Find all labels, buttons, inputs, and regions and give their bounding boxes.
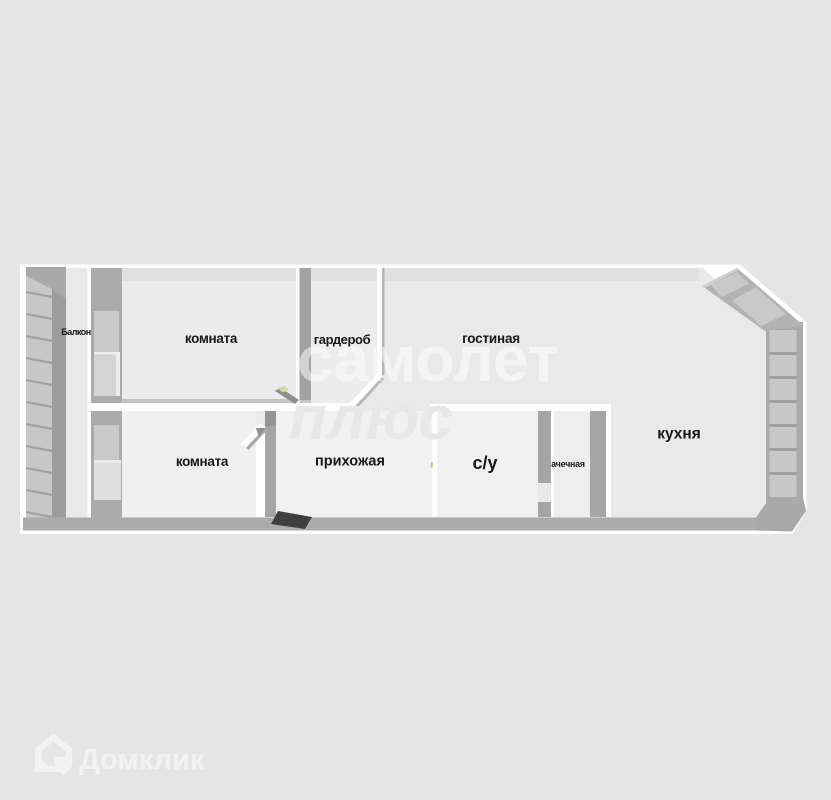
svg-text:Балкон: Балкон: [61, 327, 91, 337]
svg-text:с/у: с/у: [472, 453, 497, 473]
svg-text:прихожая: прихожая: [315, 454, 385, 470]
svg-text:Домклик: Домклик: [79, 744, 205, 776]
svg-text:ачечная: ачечная: [551, 459, 585, 469]
svg-text:комната: комната: [185, 331, 238, 346]
svg-text:гардероб: гардероб: [314, 332, 371, 347]
svg-text:комната: комната: [176, 454, 229, 469]
svg-text:плюс: плюс: [289, 384, 453, 453]
svg-text:гостиная: гостиная: [462, 331, 520, 346]
svg-text:кухня: кухня: [657, 426, 701, 443]
